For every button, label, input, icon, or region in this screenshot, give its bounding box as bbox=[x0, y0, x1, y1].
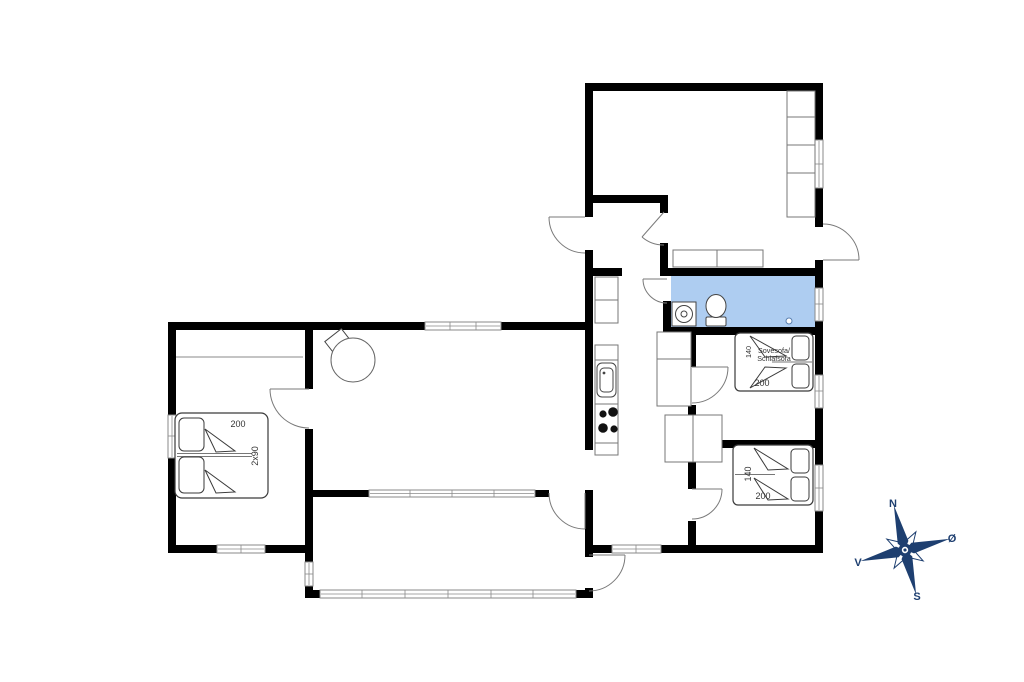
window bbox=[217, 545, 265, 553]
bed-right-width-label: 140 bbox=[743, 466, 753, 481]
door-arc-entry-west bbox=[549, 217, 585, 253]
compass-west-label: V bbox=[854, 557, 862, 569]
shelving-unit bbox=[787, 91, 815, 217]
window bbox=[305, 562, 313, 586]
exterior-walls bbox=[168, 83, 823, 598]
pillow bbox=[792, 336, 809, 360]
sofa-bed-width-label: 140 bbox=[744, 346, 753, 358]
bed-left-length-label: 200 bbox=[230, 419, 245, 429]
sideboard bbox=[673, 250, 763, 267]
door-arc-sunroom bbox=[549, 493, 585, 529]
compass-star bbox=[849, 494, 961, 606]
door-arc-bathroom bbox=[643, 279, 667, 303]
compass-rose: N Ø S V bbox=[849, 494, 961, 606]
pillow bbox=[179, 418, 204, 451]
bed-right-length-label: 200 bbox=[755, 491, 770, 501]
door-arc-entry-east bbox=[823, 224, 859, 260]
shower-icon bbox=[672, 302, 696, 326]
window bbox=[815, 465, 823, 511]
pillow bbox=[791, 449, 809, 473]
hall-closet-south bbox=[665, 415, 722, 462]
floorplan-canvas: 200 2x90 140 Sovesofa/ Schlafsofa 200 14… bbox=[0, 0, 1024, 682]
window bbox=[815, 140, 823, 188]
window bbox=[612, 545, 661, 553]
door-arc-bedroom-left bbox=[270, 389, 309, 428]
bed-left-width-label: 2x90 bbox=[250, 446, 260, 466]
floorplan-page: 200 2x90 140 Sovesofa/ Schlafsofa 200 14… bbox=[0, 0, 1024, 682]
window bbox=[425, 322, 501, 330]
window bbox=[320, 590, 576, 598]
kitchen-counter bbox=[595, 345, 618, 455]
sink-icon bbox=[597, 363, 616, 397]
window bbox=[369, 490, 535, 497]
toilet-icon bbox=[706, 295, 726, 327]
door-arc-bedroom-right bbox=[692, 489, 722, 519]
pillow bbox=[792, 364, 809, 388]
hall-closet-north bbox=[657, 332, 691, 406]
compass-south-label: S bbox=[913, 591, 920, 603]
wood-stove-icon bbox=[325, 329, 375, 382]
window bbox=[815, 288, 823, 321]
compass-north-label: N bbox=[889, 498, 897, 510]
compass-east-label: Ø bbox=[948, 533, 957, 545]
sofa-bed-length-label: 200 bbox=[754, 378, 769, 388]
floor-drain-icon bbox=[786, 318, 792, 324]
window bbox=[815, 375, 823, 408]
pillow bbox=[179, 457, 204, 493]
door-arc-north-room bbox=[642, 212, 664, 245]
door-arc-lounge-room bbox=[692, 367, 728, 403]
windows bbox=[168, 140, 823, 598]
pillow bbox=[791, 477, 809, 501]
door-arc-sunroom-exit bbox=[589, 555, 625, 591]
kitchen-tall-cabinet bbox=[595, 277, 618, 323]
sofa-bed-name-line2: Schlafsofa bbox=[757, 354, 791, 363]
